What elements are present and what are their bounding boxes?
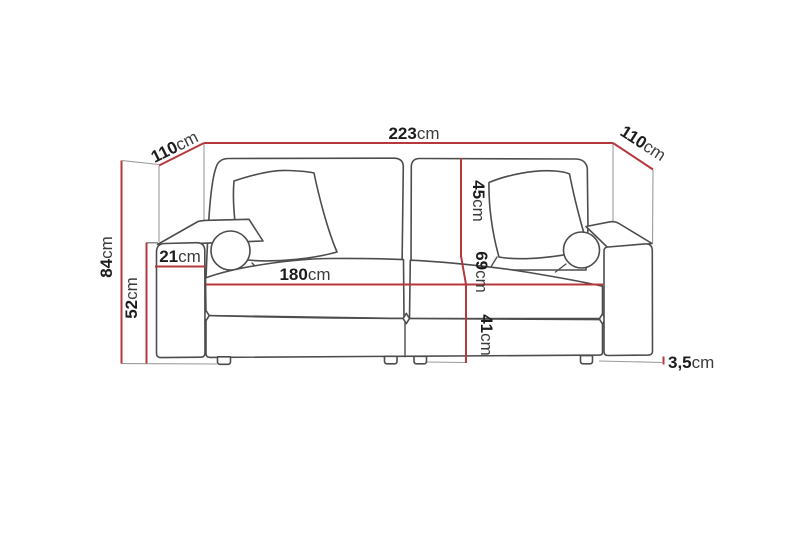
extension-floor-left [121, 364, 217, 365]
label-depth-left: 110cm [148, 127, 201, 166]
bolster-right [564, 232, 600, 268]
bolster-left [211, 231, 250, 270]
sofa-leg-3 [414, 356, 427, 364]
sofa-leg-2 [385, 356, 398, 364]
extension-floor-center [427, 362, 465, 363]
label-seat-height: 41cm [477, 314, 496, 356]
sofa-leg-4 [581, 356, 593, 364]
sofa-drawing [157, 158, 653, 364]
label-backrest-height: 45cm [469, 180, 488, 222]
extension-right-diagonal-drop [653, 170, 654, 243]
sofa-leg-1 [218, 357, 231, 365]
label-armrest-width: 21cm [159, 247, 201, 266]
label-overall-width: 223cm [388, 124, 439, 143]
label-seat-width: 180cm [279, 265, 330, 284]
label-seat-depth: 69cm [472, 251, 491, 293]
armrest-right-front-face [604, 244, 653, 356]
label-depth-right: 110cm [617, 122, 669, 165]
diagram-canvas: 223cm 110cm 110cm 84cm 52cm 21cm 180cm 4… [0, 0, 800, 533]
sofa-dimension-diagram: 223cm 110cm 110cm 84cm 52cm 21cm 180cm 4… [0, 0, 800, 533]
extension-floor-right [599, 361, 662, 363]
label-armrest-height: 52cm [122, 277, 141, 319]
label-leg-height: 3,5cm [668, 353, 714, 372]
label-overall-height: 84cm [97, 236, 116, 278]
